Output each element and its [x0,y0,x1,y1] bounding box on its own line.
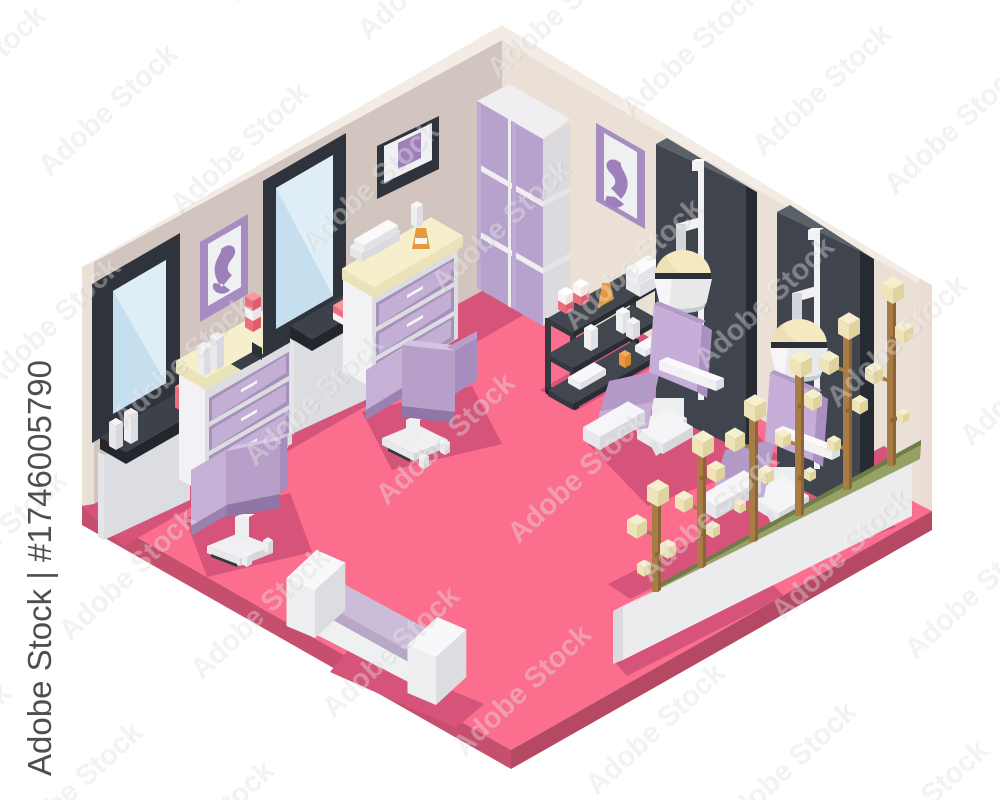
svg-text:Adobe Stock | #1746005790: Adobe Stock | #1746005790 [21,360,58,776]
